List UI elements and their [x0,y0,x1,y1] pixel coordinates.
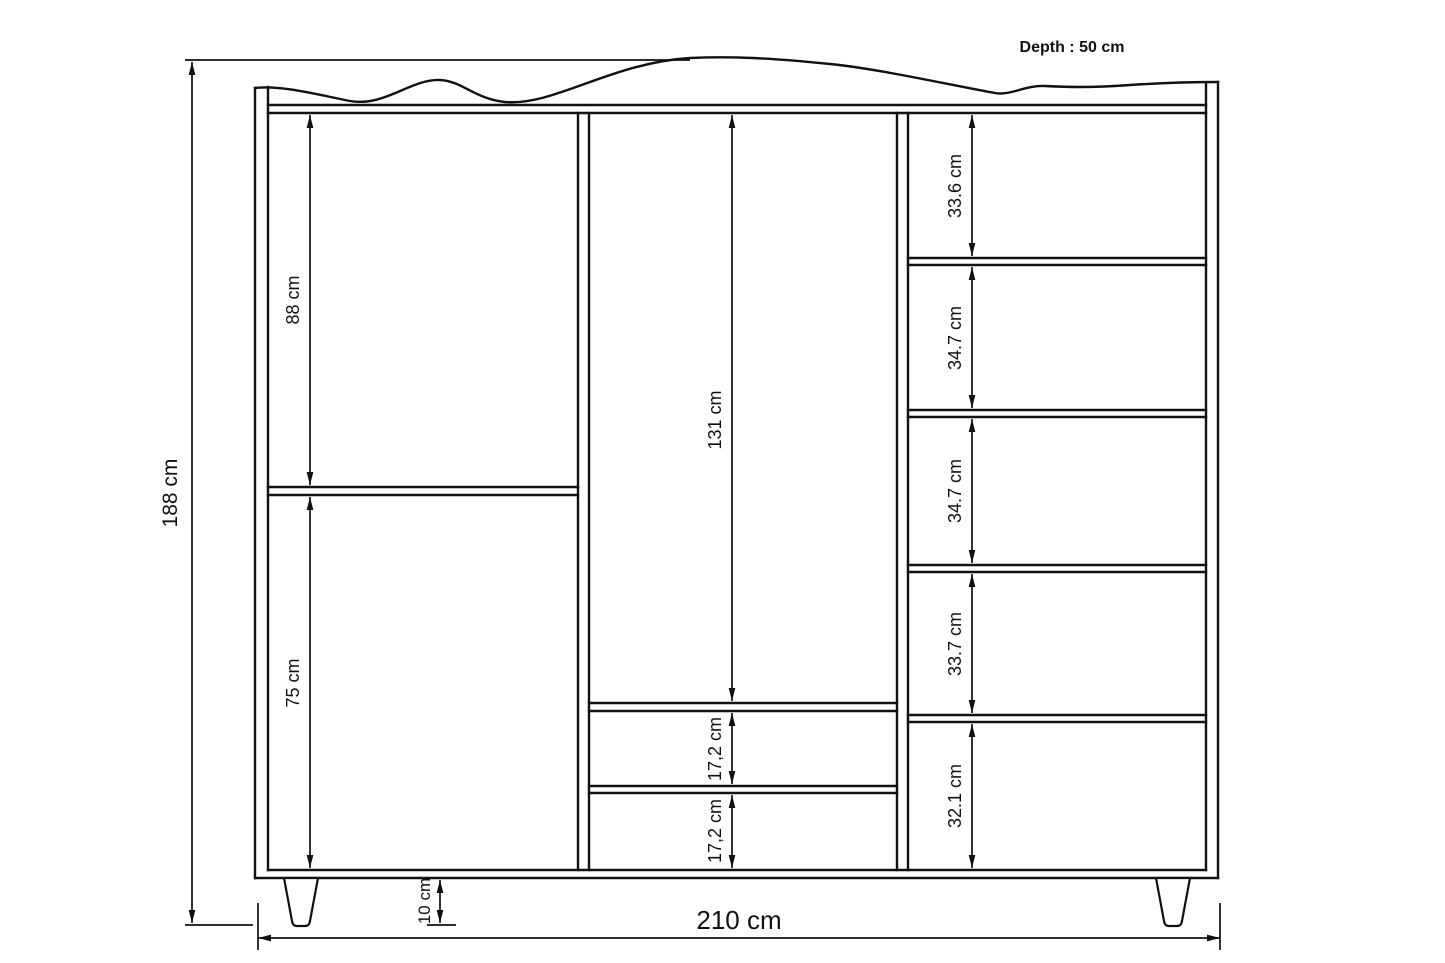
overall-width-label: 210 cm [696,905,781,935]
dim-drawer-1: 17,2 cm [705,713,732,784]
dim-left-upper-section: 88 cm [283,115,310,485]
overall-height-label: 188 cm [159,459,182,528]
dim-foot-height: 10 cm [415,878,456,925]
dim-left-lower-section: 75 cm [283,497,310,868]
dim-depth: Depth : 50 cm [1020,39,1125,56]
internal-partitions [268,113,1206,870]
right-shelf-1-label: 33.6 cm [945,154,965,218]
right-foot [1156,878,1190,926]
left-lower-label: 75 cm [283,658,303,707]
dim-overall-height: 188 cm [159,60,690,925]
dim-right-shelf-3: 34.7 cm [945,419,972,563]
dim-right-shelf-1: 33.6 cm [945,115,972,256]
left-upper-label: 88 cm [283,275,303,324]
dim-overall-width: 210 cm [258,903,1220,950]
left-foot [284,878,318,926]
middle-section-label: 131 cm [705,390,725,449]
right-shelf-5-label: 32.1 cm [945,764,965,828]
dim-right-shelf-5: 32.1 cm [945,724,972,868]
diagram-canvas: Depth : 50 cm 188 cm 210 cm 88 cm 75 cm … [0,0,1445,963]
right-shelf-2-label: 34.7 cm [945,306,965,370]
wardrobe-body [255,57,1218,878]
wardrobe-dimension-diagram: Depth : 50 cm 188 cm 210 cm 88 cm 75 cm … [0,0,1445,963]
foot-height-label: 10 cm [415,878,434,924]
dim-right-shelf-4: 33.7 cm [945,574,972,713]
drawer-2-label: 17,2 cm [705,799,725,863]
right-shelf-4-label: 33.7 cm [945,612,965,676]
right-shelf-3-label: 34.7 cm [945,459,965,523]
dim-drawer-2: 17,2 cm [705,795,732,868]
dim-middle-hanging-section: 131 cm [705,115,732,701]
drawer-1-label: 17,2 cm [705,717,725,781]
dim-right-shelf-2: 34.7 cm [945,267,972,408]
wavy-top-edge [255,57,1218,102]
depth-label: Depth : 50 cm [1020,39,1125,56]
